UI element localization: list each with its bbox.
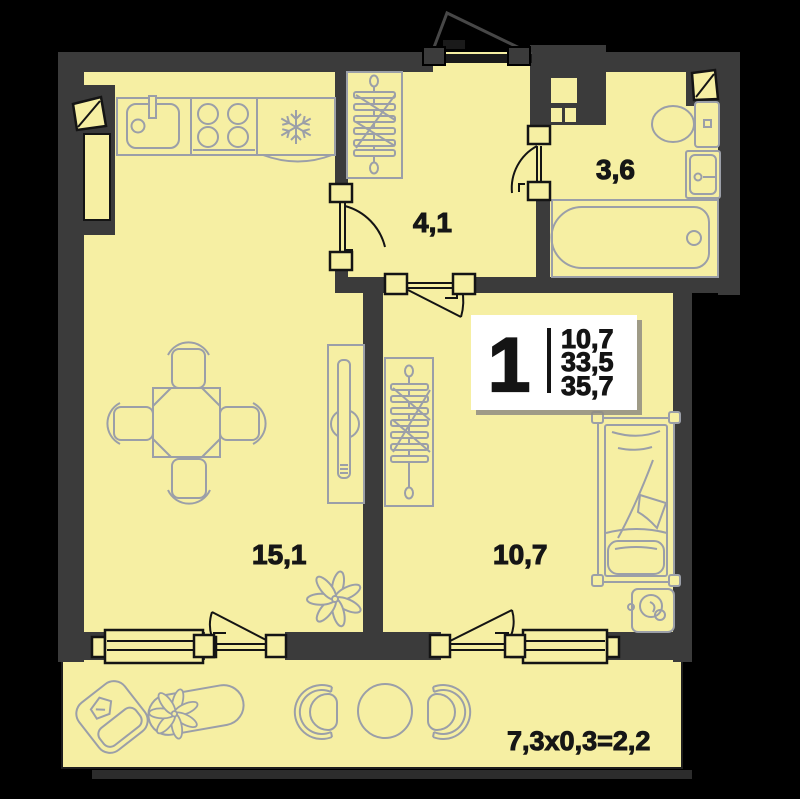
rooms-count: 1 — [488, 323, 530, 408]
wall-bedroom-partition — [363, 293, 383, 634]
wall-top-left — [58, 52, 433, 72]
nightstand-icon — [628, 589, 674, 632]
wall-bathroom-partition-lower — [536, 197, 550, 279]
faucet-icon — [149, 96, 156, 118]
pillow-icon — [608, 541, 664, 574]
chair-right — [220, 407, 259, 440]
kitchen-fixtures — [117, 96, 335, 162]
bathtub-icon — [552, 200, 718, 277]
utility-duct-large — [551, 78, 577, 103]
round-table-icon — [358, 684, 412, 738]
hallway-wardrobe-icon — [347, 72, 402, 178]
floor-plan: 4,1 3,6 15,1 10,7 7,3x0,3=2,2 1 10,7 33,… — [0, 0, 800, 799]
utility-duct-small-1 — [551, 108, 562, 122]
bathroom-label: 3,6 — [596, 154, 635, 185]
info-divider — [547, 328, 551, 393]
wall-mid-band-right — [462, 277, 740, 293]
bedroom-label: 10,7 — [493, 539, 548, 570]
info-box: 1 10,7 33,5 35,7 — [471, 315, 642, 415]
kitchen-living-label: 15,1 — [252, 539, 307, 570]
hallway-label: 4,1 — [413, 207, 452, 238]
tv-console-icon — [328, 345, 364, 503]
bedroom-window-icon — [511, 630, 619, 663]
wall-right-lower — [673, 293, 692, 662]
utility-duct-small-2 — [565, 108, 576, 122]
entrance-jamb-right — [508, 47, 530, 65]
balcony-label: 7,3x0,3=2,2 — [507, 726, 650, 756]
chair-left — [114, 407, 153, 440]
chair-top — [172, 349, 205, 388]
balcony-parapet — [92, 770, 692, 779]
toilet-tank — [695, 102, 719, 147]
bedroom-wardrobe-icon — [385, 358, 433, 506]
entrance-jamb-left — [423, 47, 445, 65]
area-total: 35,7 — [561, 371, 614, 401]
dining-table — [153, 388, 220, 457]
kitchen-duct — [84, 134, 110, 220]
entrance-handle — [443, 40, 465, 49]
wall-right-upper — [718, 52, 740, 295]
bed-icon — [592, 412, 680, 586]
chair-bottom — [172, 459, 206, 498]
floor-plan-canvas: 4,1 3,6 15,1 10,7 7,3x0,3=2,2 1 10,7 33,… — [0, 0, 800, 799]
